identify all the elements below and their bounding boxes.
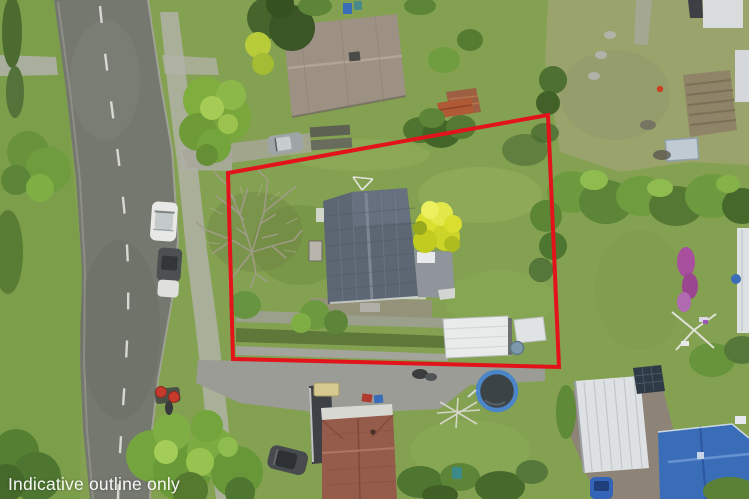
skylight — [417, 252, 435, 263]
roof-sheen — [352, 188, 410, 226]
yard-clutter — [640, 120, 656, 130]
lawn-patch — [595, 230, 685, 350]
white-building-edge — [735, 50, 749, 102]
eave-corner — [316, 208, 324, 222]
washing-item — [681, 341, 689, 346]
extension-eave — [438, 288, 455, 300]
hedge-left — [6, 66, 24, 118]
stepping-stone — [604, 31, 616, 39]
aerial-property-photo: Indicative outline only — [0, 0, 749, 499]
bush — [457, 29, 483, 51]
shed-panel — [514, 317, 546, 343]
red-object — [361, 393, 372, 402]
car-dark-street — [155, 247, 182, 298]
car-white-street — [150, 201, 179, 242]
hedge-by-shed — [556, 385, 576, 439]
white-roof-structure — [703, 0, 743, 28]
figure — [165, 401, 173, 415]
round-pool — [511, 342, 524, 355]
vehicle-crossing-right-top — [162, 55, 219, 75]
disclaimer-watermark: Indicative outline only — [8, 474, 180, 495]
tree-overhang — [531, 123, 559, 143]
road-light-patch — [70, 20, 140, 140]
trailer — [314, 383, 339, 396]
blue-object — [731, 274, 741, 284]
chimney — [349, 51, 361, 61]
bush — [428, 47, 460, 73]
blue-object — [374, 394, 384, 403]
car-blue — [590, 477, 613, 499]
white-object — [735, 416, 746, 424]
roof-vent — [370, 429, 375, 434]
person-red-jacket — [657, 86, 663, 92]
blue-bin — [343, 3, 352, 14]
road-dark-patch — [80, 240, 160, 420]
washing-item — [703, 320, 708, 324]
aerial-photo-canvas — [0, 0, 749, 499]
chimney — [697, 452, 704, 459]
dark-roof-structure — [688, 0, 703, 18]
stepping-stone — [588, 72, 600, 80]
yard-clutter — [653, 150, 671, 160]
bush-right-boundary — [529, 258, 553, 282]
tree — [539, 66, 567, 94]
porch-step — [360, 303, 380, 312]
teal-bin — [354, 1, 362, 10]
tree — [536, 91, 560, 115]
teal-bin-bottom — [452, 467, 462, 479]
bush-right-boundary — [530, 200, 562, 232]
stepping-stone — [595, 51, 607, 59]
solar-panels — [633, 365, 665, 394]
greenhouse — [665, 138, 698, 161]
chimney — [309, 241, 322, 261]
